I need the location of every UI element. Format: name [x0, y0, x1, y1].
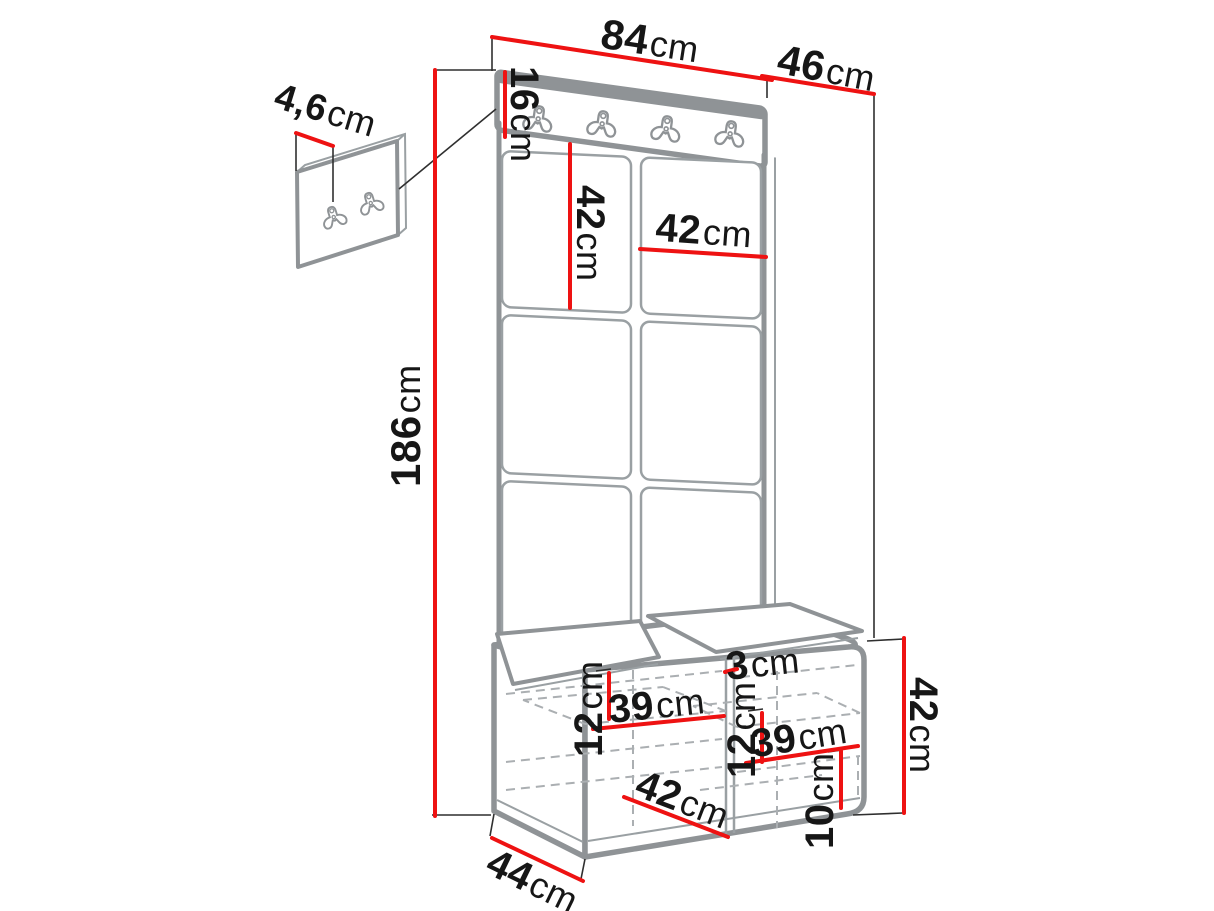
dim-width-top-label: 84cm: [598, 10, 703, 71]
pointer-line: [399, 109, 496, 189]
dim-total-height-label: 186cm: [382, 364, 429, 487]
extension-line: [867, 639, 903, 641]
extension-line: [581, 859, 585, 879]
extension-line: [490, 814, 494, 836]
dim-rail-height-label: 16cm: [502, 66, 546, 163]
upholstered-panel: [641, 321, 761, 484]
dim-panel-width-label: 42cm: [654, 206, 753, 257]
dim-shelf-drop-left-label: 12cm: [567, 661, 611, 758]
diagram-canvas: 84cm 46cm 16cm 186cm 42cm 42cm 4,6cm 44c…: [0, 0, 1214, 911]
dim-small-panel-thickness-line: [296, 133, 333, 146]
dim-bottom-clearance-label: 10cm: [798, 753, 842, 850]
dim-divider-thickness-label: 3cm: [724, 637, 802, 688]
small-wall-panel: [297, 134, 406, 267]
extension-line: [853, 813, 903, 815]
upholstered-panel: [502, 151, 631, 313]
upholstered-panel: [502, 481, 631, 646]
dimension-diagram: 84cm 46cm 16cm 186cm 42cm 42cm 4,6cm 44c…: [0, 0, 1214, 911]
dim-small-panel-thickness-label: 4,6cm: [270, 75, 381, 145]
dim-bench-height-label: 42cm: [901, 677, 945, 774]
dim-panel-height-label: 42cm: [568, 185, 612, 282]
dim-depth-top-label: 46cm: [774, 35, 880, 100]
upholstered-panel: [502, 315, 631, 479]
